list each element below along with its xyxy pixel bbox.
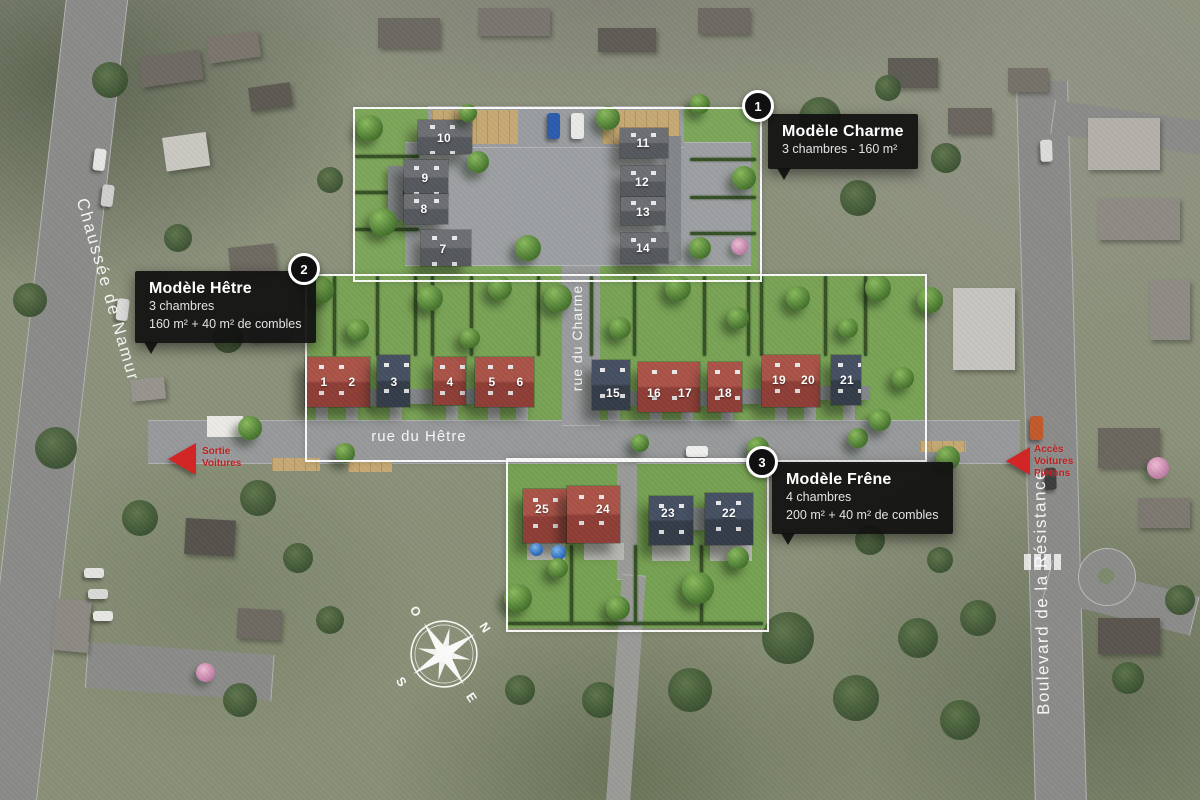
callout-title: Modèle Hêtre	[149, 280, 302, 298]
callout-modele-charme: Modèle Charme 3 chambres - 160 m²	[768, 114, 918, 169]
callout-detail: 4 chambres	[786, 489, 939, 507]
compass-west-label: O	[407, 604, 424, 620]
callout-detail: 3 chambres - 160 m²	[782, 141, 904, 159]
site-plan: 1234567891011121314151617181920212223242…	[0, 0, 1200, 800]
callout-detail: 200 m² + 40 m² de combles	[786, 507, 939, 525]
street-label-rue-du-charme: rue du Charme	[569, 268, 585, 408]
badge-1: 1	[742, 90, 774, 122]
compass-east-label: E	[463, 690, 479, 705]
callout-detail: 160 m² + 40 m² de combles	[149, 316, 302, 334]
exit-label: Sortie Voitures	[202, 446, 241, 470]
callout-title: Modèle Charme	[782, 123, 904, 141]
entry-label: Accès Voitures Piétons	[1034, 444, 1073, 479]
exit-arrow-icon	[168, 443, 196, 475]
callout-modele-frene: Modèle Frêne 4 chambres 200 m² + 40 m² d…	[772, 462, 953, 534]
street-label-boulevard-resistance: Boulevard de la Résistance	[1030, 475, 1054, 715]
callout-modele-hetre: Modèle Hêtre 3 chambres 160 m² + 40 m² d…	[135, 271, 316, 343]
zone-outline-charme	[353, 107, 762, 282]
compass-rose-icon: N E S O	[386, 596, 502, 712]
compass-south-label: S	[393, 675, 409, 690]
street-label-rue-du-hetre: rue du Hêtre	[360, 428, 478, 445]
entry-arrow-icon	[1006, 447, 1030, 475]
badge-3: 3	[746, 446, 778, 478]
zone-outline-frene	[506, 458, 769, 632]
badge-2: 2	[288, 253, 320, 285]
callout-detail: 3 chambres	[149, 298, 302, 316]
compass-north-label: N	[476, 620, 493, 635]
callout-title: Modèle Frêne	[786, 471, 939, 489]
